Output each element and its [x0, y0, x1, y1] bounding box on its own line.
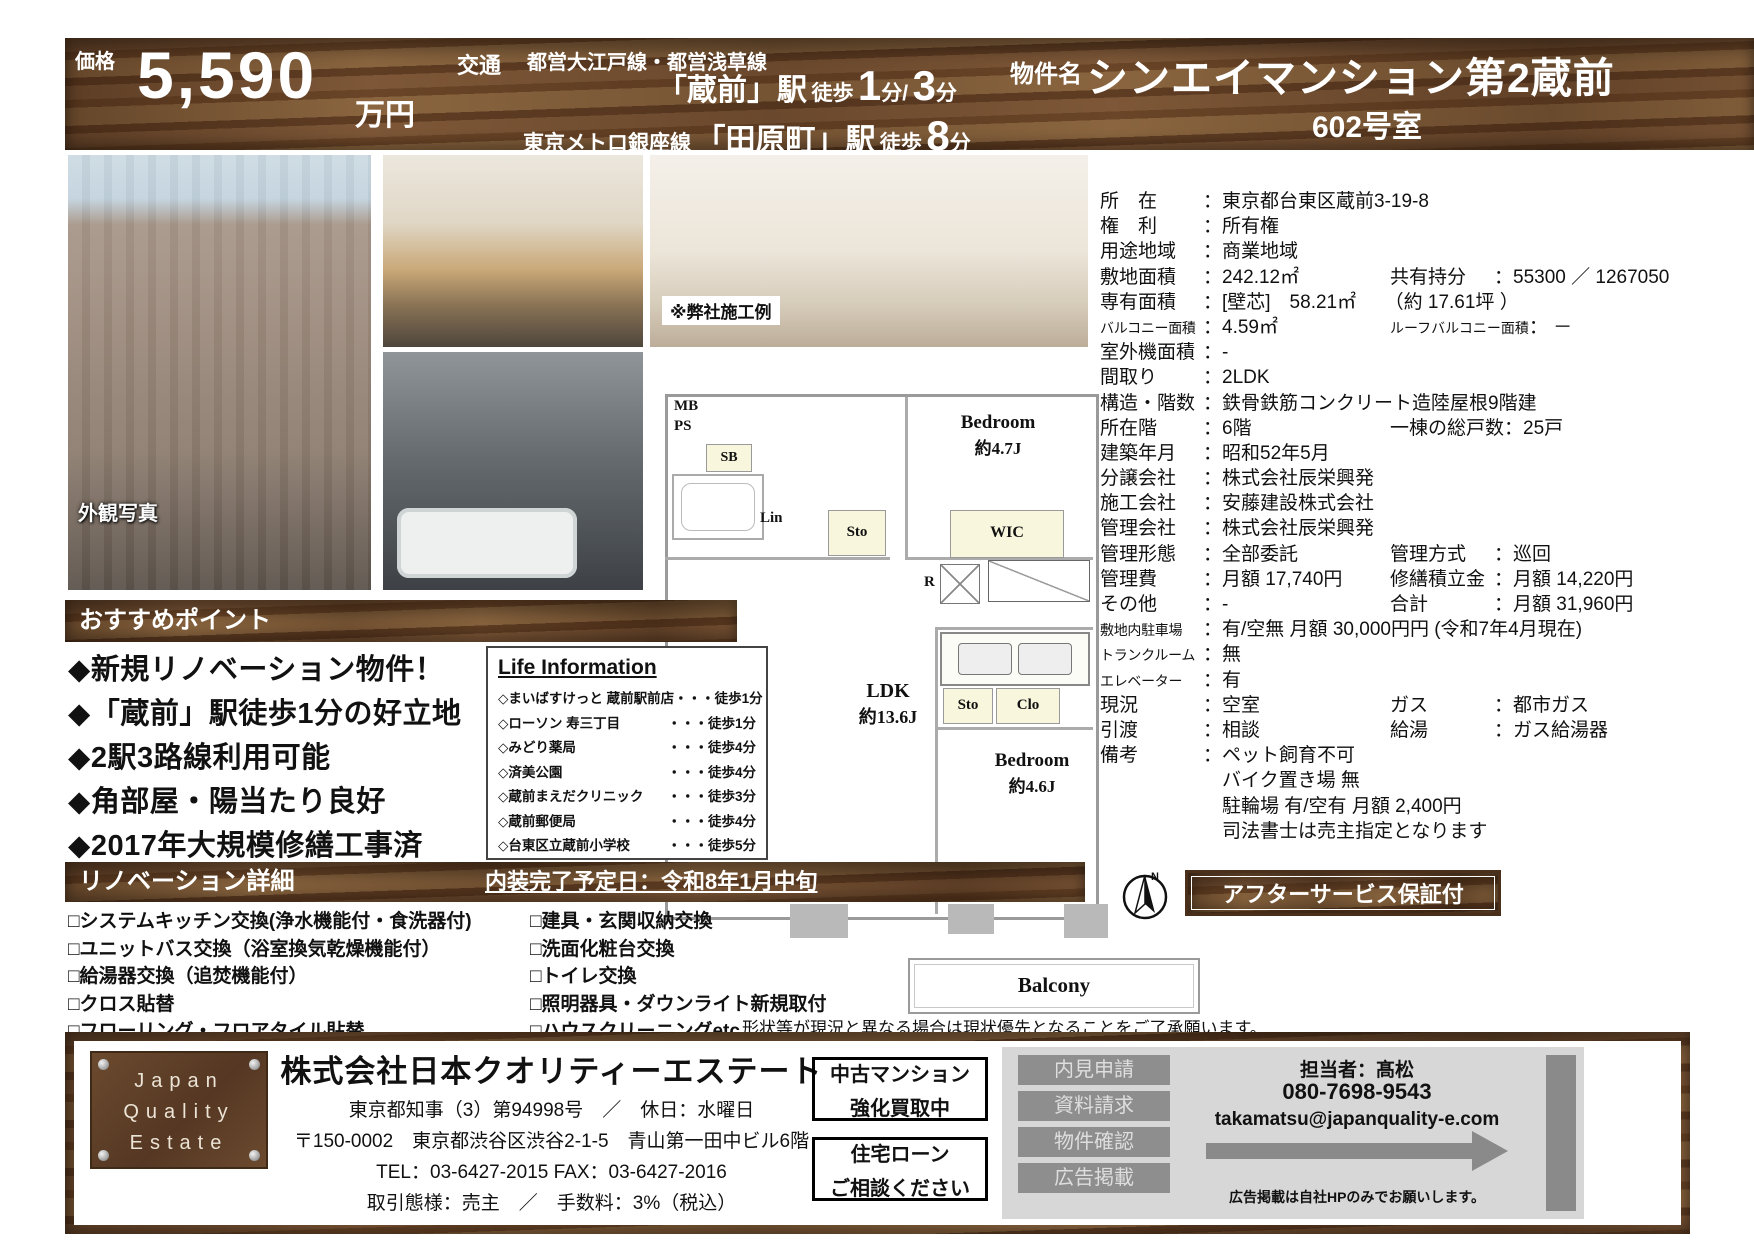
checkbox-icon: □ — [530, 966, 541, 987]
detail-value: ：全部委託 — [1203, 544, 1298, 565]
plan-room-closet: Clo — [996, 688, 1060, 724]
detail-label-2: 一棟の総戸数 — [1390, 413, 1504, 440]
diamond-icon: ◇ — [498, 789, 508, 804]
detail-label-2: 管理方式 — [1390, 539, 1494, 566]
plan-room-bedroom1: Bedroom 約4.7J — [918, 412, 1078, 459]
detail-value-2: ：ガス給湯器 — [1494, 720, 1608, 741]
company-address: 〒150-0002 東京都渋谷区渋谷2-1-5 青山第一田中ビル6階 — [279, 1126, 824, 1153]
detail-label-2: 合計 — [1390, 589, 1494, 616]
detail-value: ：- — [1203, 594, 1228, 615]
point-item: ◆角部屋・陽当たり良好 — [68, 778, 461, 822]
detail-value: ：安藤建設株式会社 — [1203, 493, 1374, 514]
detail-value: ：株式会社辰栄興発 — [1203, 518, 1374, 539]
detail-value: ：所有権 — [1203, 216, 1279, 237]
life-item: ◇台東区立蔵前小学校 ・・・徒歩5分 — [498, 834, 756, 859]
dots-icon: ・・・ — [667, 716, 708, 731]
checklist-item: □トイレ交換 — [530, 961, 827, 989]
checklist-item: □システムキッチン交換(浄水機能付・食洗器付) — [68, 906, 472, 934]
detail-label: トランクルーム — [1100, 645, 1203, 665]
transport-label: 交通 — [457, 48, 501, 80]
home-loan-box: 住宅ローンご相談ください — [812, 1137, 988, 1201]
compass-icon: N — [1118, 868, 1172, 922]
property-details: 所 在：東京都台東区蔵前3-19-8 権 利：所有権 用途地域：商業地域 敷地面… — [1100, 186, 1752, 841]
property-name-label: 物件名 — [1010, 54, 1082, 89]
plan-room-bedroom2: Bedroom 約4.6J — [972, 750, 1092, 797]
detail-value-2: ：巡回 — [1494, 544, 1551, 565]
walk-min-3: 8 — [926, 112, 949, 159]
detail-label-2: 共有持分 — [1390, 262, 1494, 289]
button-viewing-request: 内見申請 — [1018, 1055, 1170, 1085]
transaction-terms: 取引態様：売主 ／ 手数料：3%（税込） — [279, 1188, 824, 1215]
property-name: シンエイマンション第2蔵前 — [1087, 44, 1615, 104]
detail-value: ：2LDK — [1203, 367, 1270, 388]
checklist-item: □クロス貼替 — [68, 989, 472, 1017]
detail-value: ：鉄骨鉄筋コンクリート造陸屋根9階建 — [1203, 393, 1537, 414]
bathtub-shape — [397, 508, 577, 578]
plan-bathtub — [672, 474, 764, 540]
detail-value-2: ：都市ガス — [1494, 695, 1589, 716]
detail-value: ：ペット飼育不可 — [1203, 745, 1355, 766]
railway-2: 東京メトロ銀座線 — [523, 132, 691, 155]
detail-label: 建築年月 — [1100, 438, 1203, 465]
dots-icon: ・・・ — [667, 765, 708, 780]
checkbox-icon: □ — [530, 911, 541, 932]
button-property-confirm: 物件確認 — [1018, 1127, 1170, 1157]
plan-kitchen-counter — [940, 632, 1090, 686]
renovation-checklist-right: □建具・玄関収納交換□洗面化粧台交換□トイレ交換□照明器具・ダウンライト新規取付… — [530, 906, 827, 1044]
checkbox-icon: □ — [68, 939, 79, 960]
detail-value: ：月額 17,740円 — [1203, 569, 1342, 590]
button-ad-posting: 広告掲載 — [1018, 1163, 1170, 1193]
plan-closet-hatch — [988, 560, 1090, 602]
detail-label: エレベーター — [1100, 671, 1203, 691]
plan-room-ldk: LDK 約13.6J — [828, 680, 948, 729]
detail-value: バイク置き場 無 — [1203, 770, 1360, 791]
dots-icon: ・・・ — [667, 789, 708, 804]
diamond-icon: ◇ — [498, 691, 508, 706]
detail-label: 引渡 — [1100, 715, 1203, 742]
plan-room-storage-a: Sto — [828, 510, 886, 556]
detail-value: ：[壁芯] 58.21㎡ （約 17.61坪 ） — [1203, 292, 1519, 313]
living-photo: ※弊社施工例 — [650, 155, 1088, 347]
detail-label: 管理会社 — [1100, 513, 1203, 540]
kitchen-photo — [383, 155, 643, 347]
checklist-item: □照明器具・ダウンライト新規取付 — [530, 989, 827, 1017]
detail-value-2: ：月額 31,960円 — [1494, 594, 1633, 615]
detail-row: 現況：空室 ガス：都市ガス — [1100, 690, 1752, 715]
svg-text:N: N — [1151, 871, 1159, 883]
plan-refrigerator-box — [940, 564, 980, 604]
detail-value: ：6階 — [1203, 418, 1252, 439]
life-item: ◇みどり薬局 ・・・徒歩4分 — [498, 736, 756, 761]
price-value: 5,590 — [137, 42, 317, 108]
detail-value: ：242.12㎡ — [1203, 267, 1299, 288]
detail-value: 駐輪場 有/空有 月額 2,400円 — [1203, 796, 1462, 817]
detail-value: 司法書士は売主指定となります — [1203, 821, 1487, 842]
point-item: ◆「蔵前」駅徒歩1分の好立地 — [68, 690, 461, 734]
contact-panel: 内見申請 資料請求 物件確認 広告掲載 担当者：髙松 080-7698-9543… — [1002, 1047, 1584, 1219]
detail-label: 用途地域 — [1100, 236, 1203, 263]
plan-balcony: Balcony — [908, 958, 1200, 1014]
station-1: 「蔵前」駅 — [657, 74, 807, 107]
detail-label: 権 利 — [1100, 211, 1203, 238]
room-number: 602号室 — [1087, 102, 1647, 146]
detail-label: バルコニー面積 — [1100, 318, 1203, 338]
detail-value: ：相談 — [1203, 720, 1260, 741]
checklist-item: □給湯器交換（追焚機能付） — [68, 961, 472, 989]
detail-label: 専有面積 — [1100, 287, 1203, 314]
price-unit: 万円 — [355, 90, 415, 134]
detail-row: エレベーター：有 — [1100, 665, 1752, 690]
checklist-item: □建具・玄関収納交換 — [530, 906, 827, 934]
company-name: 株式会社日本クオリティーエステート — [279, 1046, 824, 1091]
detail-label: 間取り — [1100, 362, 1203, 389]
dots-icon: ・・・ — [667, 740, 708, 755]
exterior-photo-label: 外観写真 — [78, 497, 158, 526]
contact-email: takamatsu@japanquality-e.com — [1180, 1109, 1534, 1131]
life-information-box: Life Information ◇まいばすけっと 蔵前駅前店 ・・・徒歩1分 … — [486, 646, 768, 860]
button-document-request: 資料請求 — [1018, 1091, 1170, 1121]
plan-room-storage-b: Sto — [943, 688, 993, 724]
detail-row: 権 利：所有権 — [1100, 211, 1752, 236]
detail-label: 現況 — [1100, 690, 1203, 717]
completion-date: 内装完了予定日：令和8年1月中旬 — [485, 862, 817, 902]
plan-room-sb: SB — [706, 444, 752, 472]
renovation-checklist-left: □システムキッチン交換(浄水機能付・食洗器付)□ユニットバス交換（浴室換気乾燥機… — [68, 906, 472, 1044]
diamond-icon: ◇ — [498, 765, 508, 780]
detail-label: その他 — [1100, 589, 1203, 616]
detail-row: バルコニー面積：4.59㎡ ルーフバルコニー面積： － — [1100, 312, 1752, 337]
detail-row: 管理費：月額 17,740円 修繕積立金：月額 14,220円 — [1100, 564, 1752, 589]
detail-value-2: ：月額 14,220円 — [1494, 569, 1633, 590]
detail-label: 所在階 — [1100, 413, 1203, 440]
detail-value: ：株式会社辰栄興発 — [1203, 468, 1374, 489]
life-item: ◇ローソン 寿三丁目 ・・・徒歩1分 — [498, 712, 756, 737]
company-info: 株式会社日本クオリティーエステート 東京都知事（3）第94998号 ／ 休日：水… — [279, 1046, 824, 1215]
dots-icon: ・・・ — [667, 838, 708, 853]
detail-row: 管理会社：株式会社辰栄興発 — [1100, 513, 1752, 538]
detail-value: ：有 — [1203, 670, 1241, 691]
detail-value-2: ：55300 ／ 1267050 — [1494, 267, 1669, 288]
after-service-badge: アフターサービス保証付 — [1185, 870, 1501, 916]
detail-row: 管理形態：全部委託 管理方式：巡回 — [1100, 539, 1752, 564]
plan-room-wic: WIC — [950, 510, 1064, 558]
life-item: ◇済美公園 ・・・徒歩4分 — [498, 761, 756, 786]
detail-row: 所 在：東京都台東区蔵前3-19-8 — [1100, 186, 1752, 211]
detail-value-2: ：25戸 — [1504, 418, 1563, 439]
points-list: ◆新規リノベーション物件！ ◆「蔵前」駅徒歩1分の好立地 ◆2駅3路線利用可能 … — [68, 646, 461, 866]
plan-label-ps: PS — [674, 418, 692, 435]
checklist-item: □ユニットバス交換（浴室換気乾燥機能付） — [68, 934, 472, 962]
life-information-title: Life Information — [498, 656, 756, 680]
company-license: 東京都知事（3）第94998号 ／ 休日：水曜日 — [279, 1095, 824, 1122]
point-item: ◆2017年大規模修繕工事済 — [68, 822, 461, 866]
detail-label-2: ガス — [1390, 690, 1494, 717]
diamond-icon: ◇ — [498, 838, 508, 853]
detail-row: トランクルーム：無 — [1100, 639, 1752, 664]
checkbox-icon: □ — [68, 911, 79, 932]
detail-row: 敷地内駐車場：有/空無 月額 30,000円円 (令和7年4月現在) — [1100, 614, 1752, 639]
detail-row: 建築年月：昭和52年5月 — [1100, 438, 1752, 463]
detail-row: 用途地域：商業地域 — [1100, 236, 1752, 261]
detail-row: 室外機面積：- — [1100, 337, 1752, 362]
station-line-2: 東京メトロ銀座線 「田原町」駅 徒歩 8分 — [523, 112, 971, 160]
detail-row: 施工会社：安藤建設株式会社 — [1100, 488, 1752, 513]
detail-value: ：昭和52年5月 — [1203, 443, 1330, 464]
detail-label: 分譲会社 — [1100, 463, 1203, 490]
points-banner: おすすめポイント — [65, 600, 737, 642]
detail-row: 司法書士は売主指定となります — [1100, 816, 1752, 841]
dots-icon: ・・・ — [674, 691, 715, 706]
detail-value: ：無 — [1203, 644, 1241, 665]
life-item: ◇まいばすけっと 蔵前駅前店 ・・・徒歩1分 — [498, 687, 756, 712]
walk-label-2: 徒歩 — [880, 132, 922, 155]
diamond-bullet-icon: ◆ — [68, 830, 91, 862]
purchase-campaign-box: 中古マンション強化買取中 — [812, 1057, 988, 1121]
detail-row: 備考：ペット飼育不可 — [1100, 740, 1752, 765]
company-tel-fax: TEL：03-6427-2015 FAX：03-6427-2016 — [279, 1157, 824, 1184]
plan-label-mb: MB — [674, 398, 698, 415]
detail-label: 管理形態 — [1100, 539, 1203, 566]
plan-label-r: R — [924, 574, 935, 591]
detail-label-2: 修繕積立金 — [1390, 564, 1494, 591]
detail-row: 分譲会社：株式会社辰栄興発 — [1100, 463, 1752, 488]
dots-icon: ・・・ — [667, 814, 708, 829]
diamond-bullet-icon: ◆ — [68, 786, 91, 818]
detail-label: 備考 — [1100, 740, 1203, 767]
station-line-1: 「蔵前」駅 徒歩 1分/ 3分 — [657, 62, 957, 110]
detail-value: ：4.59㎡ — [1203, 317, 1278, 338]
checklist-item: □洗面化粧台交換 — [530, 934, 827, 962]
detail-row: バイク置き場 無 — [1100, 765, 1752, 790]
checkbox-icon: □ — [530, 939, 541, 960]
detail-value-2: ： － — [1529, 317, 1572, 338]
diamond-icon: ◇ — [498, 814, 508, 829]
flyer-page: 価格 5,590 万円 交通 都営大江戸線・都営浅草線 「蔵前」駅 徒歩 1分/… — [0, 0, 1754, 1240]
detail-label-2: ルーフバルコニー面積 — [1390, 318, 1529, 338]
detail-row: 所在階：6階 一棟の総戸数：25戸 — [1100, 413, 1752, 438]
detail-label: 敷地内駐車場 — [1100, 620, 1203, 640]
detail-value: ：東京都台東区蔵前3-19-8 — [1203, 191, 1429, 212]
point-item: ◆新規リノベーション物件！ — [68, 646, 461, 690]
ad-posting-note: 広告掲載は自社HPのみでお願いします。 — [1172, 1187, 1542, 1207]
detail-value: ：商業地域 — [1203, 241, 1298, 262]
station-2: 「田原町」駅 — [695, 124, 875, 157]
checkbox-icon: □ — [530, 994, 541, 1015]
detail-row: 構造・階数：鉄骨鉄筋コンクリート造陸屋根9階建 — [1100, 388, 1752, 413]
detail-row: 引渡：相談 給湯：ガス給湯器 — [1100, 715, 1752, 740]
price-label: 価格 — [75, 45, 115, 74]
arrow-icon — [1206, 1143, 1472, 1159]
detail-label: 室外機面積 — [1100, 337, 1203, 364]
diamond-bullet-icon: ◆ — [68, 742, 91, 774]
detail-row: 間取り：2LDK — [1100, 362, 1752, 387]
detail-row: その他：- 合計：月額 31,960円 — [1100, 589, 1752, 614]
contact-phone: 080-7698-9543 — [1192, 1079, 1522, 1105]
detail-label: 所 在 — [1100, 186, 1203, 213]
company-logo: JapanQualityEstate — [90, 1051, 268, 1169]
detail-label: 構造・階数 — [1100, 388, 1203, 415]
diamond-icon: ◇ — [498, 740, 508, 755]
contact-person: 担当者：髙松 — [1192, 1055, 1522, 1082]
detail-label: 施工会社 — [1100, 488, 1203, 515]
diamond-bullet-icon: ◆ — [68, 698, 91, 730]
walk-label-1: 徒歩 — [811, 82, 853, 105]
detail-row: 敷地面積：242.12㎡ 共有持分：55300 ／ 1267050 — [1100, 262, 1752, 287]
detail-label: 管理費 — [1100, 564, 1203, 591]
detail-label-2: 給湯 — [1390, 715, 1494, 742]
bathroom-photo — [383, 352, 643, 590]
walk-min-2: 3 — [913, 62, 936, 109]
checkbox-icon: □ — [68, 966, 79, 987]
detail-row: 駐輪場 有/空有 月額 2,400円 — [1100, 791, 1752, 816]
footer: JapanQualityEstate 株式会社日本クオリティーエステート 東京都… — [65, 1032, 1690, 1234]
header-band: 価格 5,590 万円 交通 都営大江戸線・都営浅草線 「蔵前」駅 徒歩 1分/… — [65, 38, 1754, 150]
plan-label-linen: Lin — [760, 510, 783, 527]
diamond-icon: ◇ — [498, 716, 508, 731]
checkbox-icon: □ — [68, 994, 79, 1015]
diamond-bullet-icon: ◆ — [68, 654, 91, 686]
renovation-banner: リノベーション詳細 内装完了予定日：令和8年1月中旬 — [65, 862, 1085, 902]
life-item: ◇蔵前まえだクリニック ・・・徒歩3分 — [498, 785, 756, 810]
point-item: ◆2駅3路線利用可能 — [68, 734, 461, 778]
exterior-photo: 外観写真 — [68, 155, 371, 590]
detail-value: ：有/空無 月額 30,000円円 (令和7年4月現在) — [1203, 619, 1582, 640]
detail-label: 敷地面積 — [1100, 262, 1203, 289]
detail-value: ：空室 — [1203, 695, 1260, 716]
detail-value: ：- — [1203, 342, 1228, 363]
construction-example-note: ※弊社施工例 — [662, 296, 780, 325]
life-item: ◇蔵前郵便局 ・・・徒歩4分 — [498, 810, 756, 835]
walk-min-1: 1 — [858, 62, 881, 109]
detail-row: 専有面積：[壁芯] 58.21㎡ （約 17.61坪 ） — [1100, 287, 1752, 312]
